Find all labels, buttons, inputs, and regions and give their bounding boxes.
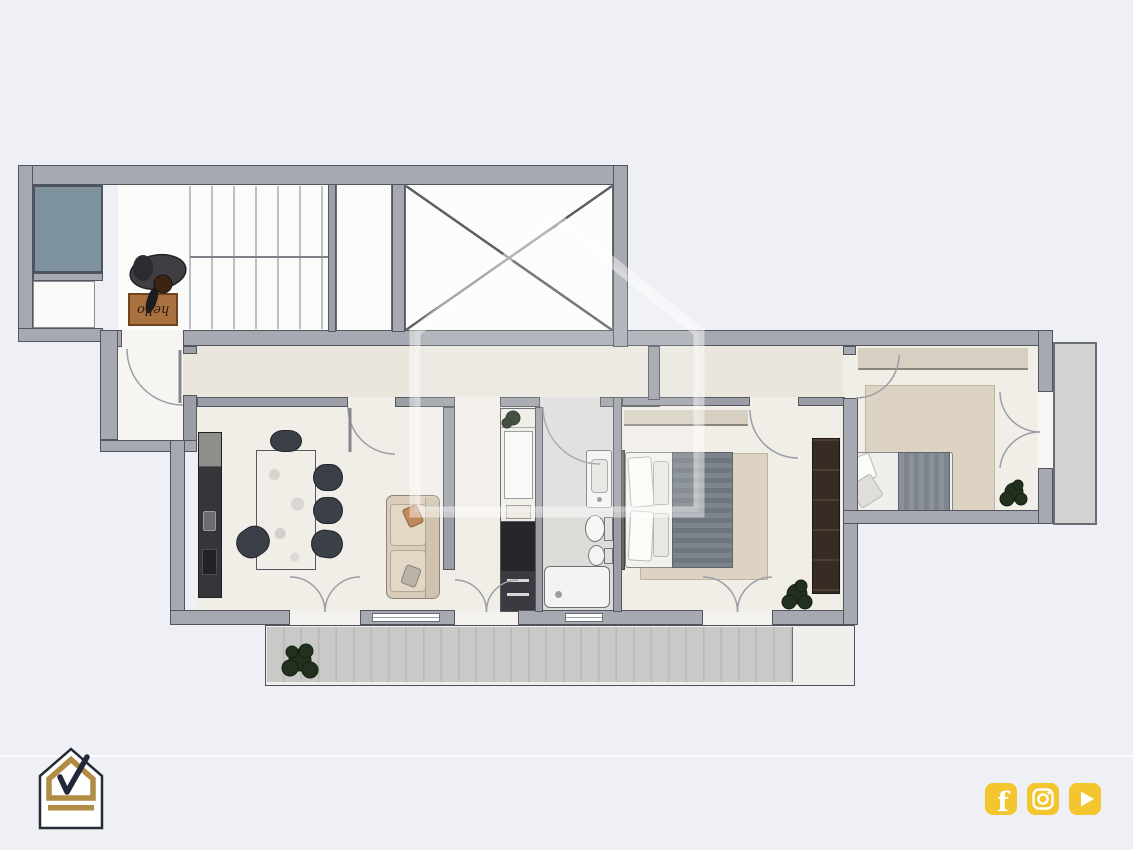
elevator-floor: [405, 184, 613, 332]
bedroom2-door-opening: [843, 355, 856, 398]
wall: [33, 273, 103, 281]
nook-cabinet-dark: [501, 521, 536, 571]
kitchen-stove: [202, 549, 217, 575]
wall: [518, 610, 703, 625]
wall: [100, 330, 118, 440]
doormat-text: hello: [137, 302, 169, 317]
wall: [622, 397, 750, 406]
living-kitchen-floor: [197, 407, 535, 612]
master-pillow: [628, 510, 655, 561]
wall: [648, 346, 660, 400]
vestibule-opening: [183, 352, 197, 395]
bedroom2-closet-strip: [858, 348, 1028, 370]
sink-basin: [591, 459, 608, 493]
window: [565, 613, 603, 622]
wall: [843, 346, 856, 355]
wall: [500, 397, 540, 407]
sofa: [386, 495, 440, 599]
kitchen-sink: [203, 511, 216, 531]
nook-opening: [455, 397, 500, 407]
entrance-door-opening: [122, 330, 183, 347]
balcony-floor: [1053, 342, 1097, 525]
terrace: [265, 625, 855, 686]
vestibule-floor: [118, 346, 183, 440]
wall: [613, 165, 628, 347]
wall: [798, 397, 845, 406]
master-blanket: [672, 452, 733, 568]
wall: [197, 397, 348, 407]
bathroom-vanity: [586, 450, 612, 508]
bidet-bowl: [588, 545, 605, 566]
nook-cabinet-white: [504, 431, 533, 499]
doormat: hello: [128, 293, 178, 326]
master-wardrobe: [812, 438, 840, 594]
sink-faucet: [597, 497, 602, 502]
youtube-icon[interactable]: [1069, 783, 1101, 815]
dining-chair: [270, 430, 302, 452]
page: { "plan": { "doormat_text": "hello", "ro…: [0, 0, 1133, 850]
toilet-bowl: [585, 515, 605, 542]
dining-chair: [313, 464, 343, 491]
below-shaft-floor: [33, 281, 95, 328]
master-closet-strip: [624, 410, 748, 426]
wall: [395, 397, 455, 407]
slit: [507, 593, 529, 596]
bidet-tank: [604, 548, 613, 564]
shower-tray: [544, 566, 610, 608]
master-pillow: [653, 513, 669, 557]
company-logo: [33, 746, 109, 830]
window: [372, 613, 440, 622]
shaft-landing-floor: [336, 184, 392, 332]
dining-table: [256, 450, 316, 570]
master-pillow: [627, 456, 654, 508]
nook-cabinet-dark2: [501, 571, 536, 611]
corridor-floor: [197, 346, 660, 397]
nook-shelf-items: [506, 505, 531, 519]
sofa-back: [425, 498, 439, 598]
wall: [18, 165, 628, 185]
wall: [170, 440, 185, 625]
kitchen-counter: [198, 432, 222, 598]
wall: [328, 184, 336, 332]
shower-drain: [555, 591, 562, 598]
bedroom2-balcony-opening: [1038, 392, 1053, 468]
wall: [535, 407, 543, 612]
footer-divider: [0, 755, 1133, 757]
nook-terrace-opening: [455, 610, 518, 625]
master-terrace-opening: [703, 610, 772, 625]
instagram-icon[interactable]: [1027, 783, 1059, 815]
floor-plan: hello: [0, 0, 1133, 850]
wall: [18, 328, 103, 342]
nook-closet-column: [500, 408, 537, 612]
facebook-icon[interactable]: f: [985, 783, 1017, 815]
kitchen-fridge: [199, 433, 221, 467]
social-links: f: [985, 783, 1107, 815]
light-shaft-square: [33, 185, 103, 273]
wall: [843, 510, 1053, 524]
wall: [443, 407, 455, 570]
wall: [170, 610, 290, 625]
toilet-tank: [604, 517, 613, 541]
wall: [392, 184, 405, 332]
hallway-floor: [660, 346, 843, 400]
wall: [18, 165, 33, 342]
nook-shelf-line: [501, 427, 536, 428]
living-terrace-opening: [290, 610, 360, 625]
house-check-logo-icon: [33, 746, 109, 830]
dining-chair: [313, 497, 343, 524]
master-pillow: [653, 461, 669, 505]
terrace-tile-section: [792, 627, 852, 682]
bathroom-door-opening: [540, 397, 600, 407]
master-door-opening: [750, 397, 798, 409]
wall: [1038, 468, 1053, 524]
slit: [507, 579, 529, 582]
wall: [613, 397, 622, 612]
bedroom2-blanket: [898, 452, 950, 518]
living-door-opening: [348, 397, 395, 407]
terrace-deck: [267, 627, 792, 682]
wall: [1038, 330, 1053, 392]
wall: [183, 346, 197, 354]
